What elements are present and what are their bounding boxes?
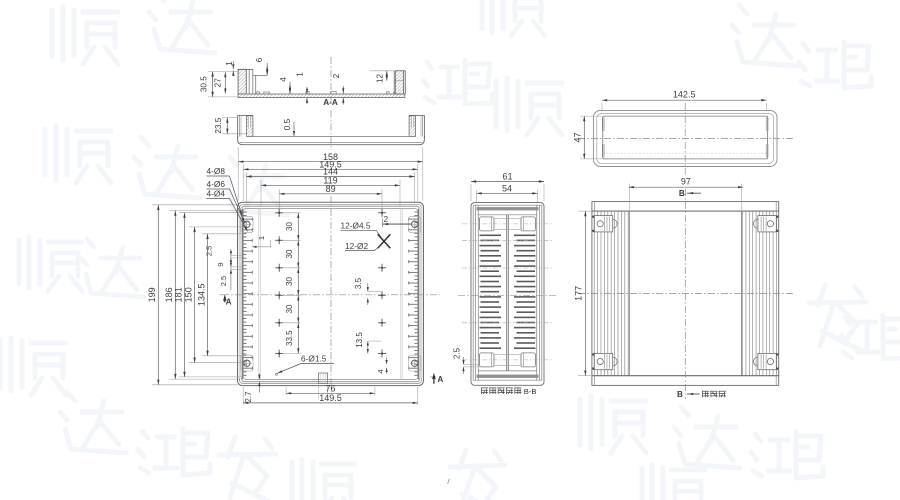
svg-text:30: 30 (285, 304, 294, 313)
svg-text:B: B (679, 189, 685, 198)
svg-text:B-B: B-B (524, 387, 537, 396)
svg-text:23.5: 23.5 (214, 117, 223, 133)
svg-text:12-Ø2: 12-Ø2 (345, 241, 368, 251)
svg-text:12-Ø4.5: 12-Ø4.5 (341, 221, 371, 231)
svg-text:2.5: 2.5 (219, 276, 228, 287)
svg-text:30: 30 (285, 222, 294, 231)
svg-text:2.5: 2.5 (452, 347, 461, 359)
svg-text:4-Ø4: 4-Ø4 (207, 189, 226, 199)
svg-text:76: 76 (325, 383, 335, 393)
svg-text:12: 12 (375, 74, 384, 84)
svg-text:4: 4 (279, 77, 288, 82)
svg-text:30: 30 (285, 277, 294, 286)
svg-text:142.5: 142.5 (673, 89, 696, 99)
svg-text:30: 30 (285, 249, 294, 258)
svg-text:97: 97 (681, 177, 691, 187)
svg-text:54: 54 (502, 183, 512, 193)
svg-text:33.5: 33.5 (285, 330, 294, 346)
svg-text:2.5: 2.5 (205, 246, 214, 257)
svg-text:13.5: 13.5 (355, 332, 364, 348)
svg-text:177: 177 (573, 286, 583, 301)
svg-text:2: 2 (384, 215, 389, 224)
svg-text:30.5: 30.5 (200, 76, 209, 92)
svg-text:89: 89 (326, 184, 336, 194)
svg-text:61: 61 (502, 172, 512, 182)
svg-text:B: B (677, 390, 683, 399)
svg-text:27: 27 (213, 78, 222, 88)
svg-text:1: 1 (296, 72, 305, 77)
svg-text:181: 181 (174, 287, 184, 302)
svg-text:47: 47 (572, 132, 582, 142)
svg-text:A-A: A-A (323, 98, 338, 107)
svg-text:4: 4 (376, 369, 385, 373)
svg-text:6-Ø1.5: 6-Ø1.5 (301, 354, 327, 364)
svg-text:1: 1 (257, 236, 266, 240)
svg-text:9: 9 (216, 262, 225, 266)
svg-text:150: 150 (184, 287, 194, 302)
svg-text:134.5: 134.5 (197, 284, 207, 307)
svg-text:149.5: 149.5 (319, 393, 342, 403)
svg-text:2.7: 2.7 (244, 391, 253, 403)
svg-text:199: 199 (147, 287, 157, 302)
svg-text:0.5: 0.5 (283, 118, 292, 130)
svg-text:3.5: 3.5 (354, 277, 363, 289)
svg-text:A: A (437, 375, 443, 384)
svg-text:A: A (226, 297, 232, 306)
svg-text:6: 6 (255, 57, 264, 62)
svg-text:2: 2 (332, 73, 341, 78)
svg-text:4-Ø8: 4-Ø8 (207, 166, 226, 176)
